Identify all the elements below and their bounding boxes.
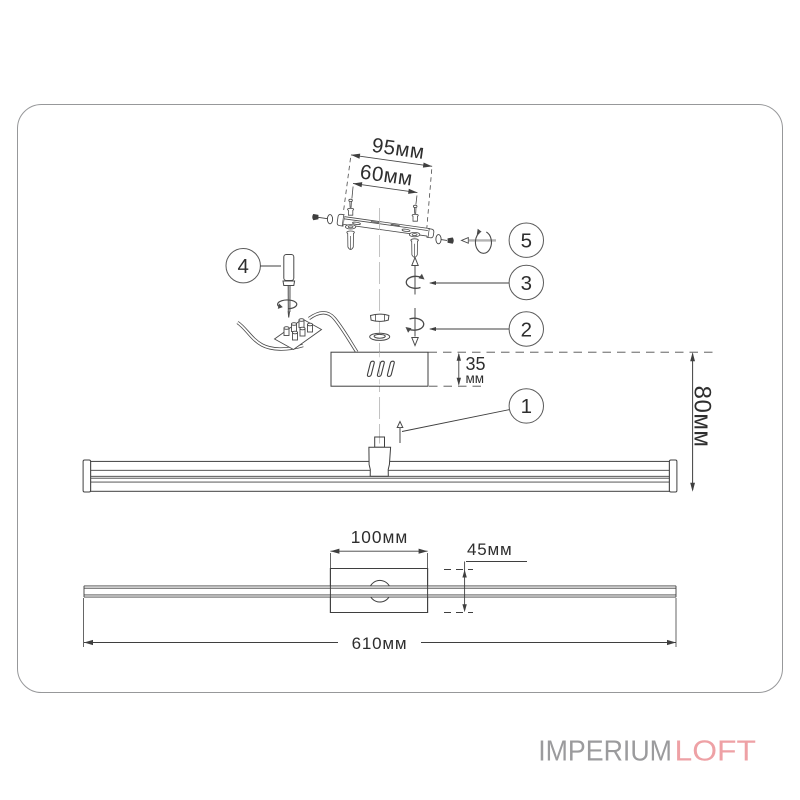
svg-text:100мм: 100мм xyxy=(351,527,409,547)
svg-text:3: 3 xyxy=(521,272,532,295)
svg-text:LOFT: LOFT xyxy=(675,735,756,767)
svg-text:4: 4 xyxy=(237,255,248,278)
svg-text:45мм: 45мм xyxy=(467,540,512,559)
svg-text:IMPERIUM: IMPERIUM xyxy=(538,735,672,767)
svg-text:5: 5 xyxy=(521,230,532,253)
svg-text:1: 1 xyxy=(521,395,532,418)
svg-text:мм: мм xyxy=(466,371,485,386)
svg-text:80мм: 80мм xyxy=(689,386,716,448)
svg-text:610мм: 610мм xyxy=(352,634,408,653)
svg-text:2: 2 xyxy=(521,318,532,341)
